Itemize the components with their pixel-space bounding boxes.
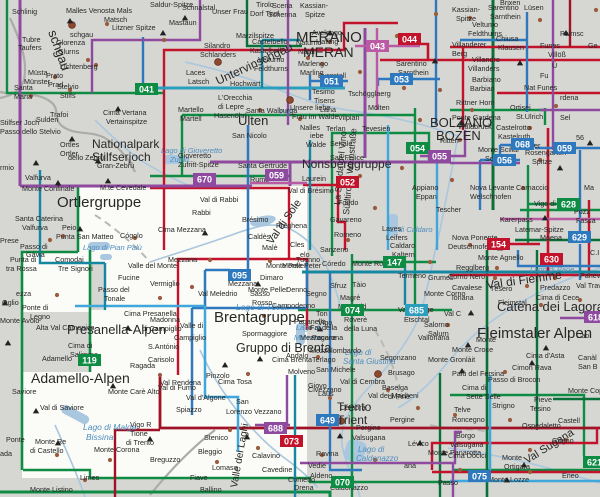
svg-text:Monte Peter: Monte Peter (282, 261, 322, 270)
svg-text:Denno: Denno (286, 285, 307, 294)
svg-text:Eneo: Eneo (562, 471, 579, 480)
svg-text:Villandro: Villandro (472, 55, 500, 64)
svg-text:Regglberg: Regglberg (456, 263, 489, 272)
svg-text:Ravina: Ravina (316, 449, 338, 458)
svg-text:Vigo R: Vigo R (130, 420, 151, 429)
svg-text:Lago di Pian Palù: Lago di Pian Palù (83, 243, 143, 252)
svg-text:Moena: Moena (540, 233, 562, 242)
svg-text:Drena: Drena (294, 483, 314, 492)
svg-text:Velturno: Velturno (258, 55, 284, 64)
svg-text:Monte Carè Alto: Monte Carè Alto (108, 387, 160, 396)
svg-text:154: 154 (491, 240, 506, 250)
svg-text:Saviore: Saviore (12, 387, 36, 396)
svg-text:Hafling: Hafling (316, 37, 338, 46)
svg-text:Palmsc: Palmsc (560, 29, 584, 38)
svg-text:Kassian-: Kassian- (300, 1, 329, 10)
svg-text:Vedie: Vedie (308, 461, 326, 470)
svg-text:Pieve: Pieve (534, 395, 552, 404)
svg-text:Stenico: Stenico (204, 433, 228, 442)
svg-text:Deutschnofen: Deutschnofen (448, 242, 492, 251)
svg-text:Ritten: Ritten (440, 136, 459, 145)
svg-text:Villöß: Villöß (548, 50, 566, 59)
svg-text:Carisolo: Carisolo (148, 355, 174, 364)
svg-text:Pagane: Pagane (312, 333, 337, 342)
svg-text:Ospedaletto: Ospedaletto (522, 421, 561, 430)
svg-text:Monte Croce: Monte Croce (452, 345, 493, 354)
svg-text:ada: ada (0, 449, 12, 458)
svg-text:Kastelbell: Kastelbell (250, 46, 282, 55)
svg-text:Paganella: Paganella (294, 317, 326, 326)
svg-text:Santa Gertrude: Santa Gertrude (238, 161, 287, 170)
svg-text:Ponte di: Ponte di (22, 303, 49, 312)
svg-text:Limes: Limes (80, 473, 100, 482)
svg-text:Lichtenberg: Lichtenberg (60, 62, 98, 71)
svg-text:Cima Tosa: Cima Tosa (218, 377, 252, 386)
svg-text:068: 068 (515, 140, 530, 150)
svg-text:Santa Caterina: Santa Caterina (15, 214, 63, 223)
svg-text:Schnalstal: Schnalstal (182, 3, 216, 12)
svg-text:Fassa: Fassa (576, 216, 596, 225)
svg-text:Predazzo: Predazzo (540, 283, 570, 292)
svg-text:649: 649 (320, 416, 335, 426)
svg-text:Comodai: Comodai (55, 255, 84, 264)
svg-text:Ballino: Ballino (200, 485, 222, 494)
svg-text:Gavareno: Gavareno (330, 215, 362, 224)
svg-text:Borgo: Borgo (456, 431, 475, 440)
svg-text:Marlengo: Marlengo (298, 59, 328, 68)
svg-text:Gioveretto: Gioveretto (178, 151, 211, 160)
svg-text:Tàio: Tàio (352, 280, 366, 289)
svg-text:Val C: Val C (444, 309, 461, 318)
svg-text:Campiglio: Campiglio (174, 333, 206, 342)
svg-text:Vilpian: Vilpian (338, 113, 359, 122)
svg-text:Appiano: Appiano (412, 183, 438, 192)
svg-text:Stilfser Joch: Stilfser Joch (0, 118, 39, 127)
svg-text:San Nicolo: San Nicolo (232, 131, 267, 140)
svg-text:059: 059 (557, 144, 572, 154)
svg-text:Lorenzo Vezzano: Lorenzo Vezzano (226, 407, 282, 416)
svg-text:Telve: Telve (454, 405, 471, 414)
svg-text:Canàl: Canàl (578, 353, 597, 362)
svg-text:Tesimo: Tesimo (312, 87, 335, 96)
svg-text:rmio: rmio (0, 163, 14, 172)
svg-text:Taufers: Taufers (18, 43, 42, 52)
svg-text:Tescher: Tescher (436, 205, 462, 214)
svg-text:Schlanders: Schlanders (200, 50, 236, 59)
svg-text:Scena: Scena (272, 1, 292, 10)
svg-text:Müsta: Müsta (28, 68, 48, 77)
svg-text:Cavalese: Cavalese (452, 283, 482, 292)
svg-text:054: 054 (410, 144, 425, 154)
svg-text:Salorno: Salorno (424, 320, 449, 329)
svg-text:Tonale: Tonale (104, 294, 125, 303)
svg-text:St.Ulrich: St.Ulrich (516, 112, 543, 121)
svg-text:Mölten: Mölten (368, 103, 390, 112)
svg-text:Oglio: Oglio (2, 298, 19, 307)
svg-text:075: 075 (472, 472, 487, 482)
svg-text:Tre Signori: Tre Signori (58, 264, 93, 273)
svg-text:Andalo: Andalo (286, 351, 308, 360)
svg-text:Monte Lozze: Monte Lozze (488, 475, 529, 484)
svg-text:Alta Val Camonica: Alta Val Camonica (36, 323, 95, 332)
svg-text:Madonna: Madonna (150, 315, 180, 324)
svg-text:Sarentino: Sarentino (396, 59, 427, 68)
svg-text:Caldaro: Caldaro (390, 241, 415, 250)
svg-text:Strigno: Strigno (492, 401, 515, 410)
svg-text:Lévico: Lévico (408, 439, 429, 448)
svg-text:Fleimstal: Fleimstal (498, 298, 527, 307)
svg-text:Welschnofen: Welschnofen (470, 192, 511, 201)
svg-text:Valfurva: Valfurva (25, 173, 51, 182)
svg-text:Rittner Horn: Rittner Horn (456, 98, 495, 107)
svg-text:Pergine: Pergine (356, 423, 381, 432)
svg-text:Brésimo: Brésimo (242, 215, 268, 224)
svg-text:M.te Cevedale: M.te Cevedale (100, 183, 146, 192)
svg-text:Ortigara: Ortigara (504, 462, 530, 471)
svg-text:628: 628 (561, 200, 576, 210)
svg-text:Carnaccio: Carnaccio (516, 183, 548, 192)
svg-text:di Castello: di Castello (30, 446, 64, 455)
svg-text:Cima di Cece: Cima di Cece (536, 293, 579, 302)
svg-text:Civezzano: Civezzano (308, 385, 342, 394)
svg-text:Mastaun: Mastaun (169, 18, 197, 27)
svg-text:Maria: Maria (14, 92, 32, 101)
svg-text:Tione: Tione (130, 429, 148, 438)
svg-text:Val Rendena: Val Rendena (160, 378, 201, 387)
svg-text:Waidbruck: Waidbruck (458, 122, 492, 131)
svg-text:Cima d'Asta: Cima d'Asta (526, 351, 565, 360)
svg-text:056: 056 (497, 156, 512, 166)
svg-text:Lago di Malga: Lago di Malga (83, 422, 137, 432)
svg-text:di Trento: di Trento (126, 438, 154, 447)
svg-text:Cavedine: Cavedine (262, 465, 292, 474)
svg-text:Ortisei: Ortisei (510, 103, 531, 112)
svg-text:Veltumo: Veltumo (472, 20, 498, 29)
svg-text:di Lepre: di Lepre (218, 102, 244, 111)
svg-text:Valle di: Valle di (180, 321, 203, 330)
svg-text:041: 041 (139, 85, 154, 95)
svg-text:621: 621 (587, 458, 600, 468)
svg-text:dello Zebrù: dello Zebrù (68, 153, 104, 162)
svg-text:Zufritt-Spitze: Zufritt-Spitze (178, 160, 219, 169)
svg-text:630: 630 (544, 255, 559, 265)
svg-text:Feldthurns: Feldthurns (254, 64, 288, 73)
svg-text:685: 685 (409, 306, 424, 316)
svg-text:Dimaro: Dimaro (260, 273, 283, 282)
svg-text:S.António: S.António (148, 342, 179, 351)
svg-text:Villanderer: Villanderer (452, 40, 487, 49)
svg-text:Stelvio: Stelvio (57, 82, 79, 91)
svg-text:Latsch: Latsch (188, 77, 209, 86)
svg-text:Sette Selle: Sette Selle (466, 392, 501, 401)
svg-text:San: San (236, 397, 249, 406)
svg-text:Spitze: Spitze (305, 10, 325, 19)
svg-text:Cles: Cles (290, 240, 305, 249)
svg-text:Santa: Santa (14, 83, 33, 92)
svg-text:Ü: Ü (552, 61, 557, 70)
svg-text:Passo del: Passo del (98, 285, 130, 294)
svg-text:Fiave: Fiave (190, 473, 208, 482)
svg-text:Ponte Gardena: Ponte Gardena (452, 113, 501, 122)
svg-text:Punta San Matteo: Punta San Matteo (56, 232, 114, 241)
svg-text:629: 629 (572, 233, 587, 243)
svg-text:074: 074 (345, 306, 360, 316)
svg-text:Tschögglaerg: Tschögglaerg (348, 89, 391, 98)
svg-text:Cima di: Cima di (462, 383, 487, 392)
svg-text:C.I: C.I (590, 248, 599, 257)
svg-text:Valsugana: Valsugana (352, 433, 385, 442)
svg-text:Barbian: Barbian (470, 84, 495, 93)
svg-text:San Michele: San Michele (316, 365, 356, 374)
svg-text:Frau im Walde: Frau im Walde (292, 112, 338, 121)
svg-text:Avelengo: Avelengo (312, 28, 342, 37)
svg-text:Mezzana: Mezzana (168, 255, 197, 264)
svg-text:Val Trave: Val Trave (576, 281, 600, 290)
svg-text:Sanzeno: Sanzeno (320, 245, 348, 254)
svg-text:Sasso: Sasso (250, 289, 270, 298)
svg-text:119: 119 (82, 356, 97, 366)
svg-text:L'Orecchia: L'Orecchia (218, 93, 252, 102)
svg-text:Lomaso: Lomaso (212, 463, 238, 472)
svg-text:Ma: Ma (584, 183, 594, 192)
svg-text:618: 618 (588, 313, 600, 323)
svg-text:Spiazzo: Spiazzo (176, 405, 202, 414)
svg-text:Stilfs: Stilfs (60, 91, 76, 100)
svg-text:Leifers: Leifers (386, 233, 408, 242)
svg-text:Glorenza: Glorenza (56, 38, 85, 47)
svg-text:Segno: Segno (306, 289, 327, 298)
svg-text:051: 051 (324, 77, 339, 87)
svg-text:Berg: Berg (452, 49, 467, 58)
svg-text:Laces: Laces (186, 68, 206, 77)
svg-text:Malles Venosta Mals: Malles Venosta Mals (66, 6, 132, 15)
svg-text:Caldès: Caldès (248, 232, 271, 241)
svg-text:Val di Rabbi: Val di Rabbi (200, 195, 239, 204)
svg-text:Corno Nero: Corno Nero (448, 272, 485, 281)
svg-text:Mezzolombardo: Mezzolombardo (310, 346, 361, 355)
svg-text:Cao: Cao (576, 331, 589, 340)
svg-text:Castelrotto: Castelrotto (496, 123, 531, 132)
svg-text:Monte: Monte (476, 335, 496, 344)
svg-text:Peio: Peio (62, 223, 76, 232)
svg-text:Martello: Martello (178, 105, 204, 114)
svg-text:Cima Mezzana: Cima Mezzana (158, 225, 206, 234)
svg-text:Schenna: Schenna (268, 10, 296, 19)
svg-text:Val dei Mocheni: Val dei Mocheni (368, 391, 419, 400)
svg-text:Litzner Spitze: Litzner Spitze (112, 23, 156, 32)
svg-text:schgau: schgau (70, 30, 93, 39)
svg-text:Nationalpark: Nationalpark (92, 137, 160, 151)
svg-text:Monte Copp: Monte Copp (568, 386, 600, 395)
svg-text:043: 043 (370, 42, 385, 52)
svg-text:Funes: Funes (540, 41, 560, 50)
svg-text:iebe: iebe (310, 131, 324, 140)
svg-text:Tésero: Tésero (490, 284, 512, 293)
svg-text:Spitze: Spitze (532, 157, 552, 166)
svg-text:Pergine: Pergine (390, 415, 415, 424)
svg-text:Martell: Martell (180, 114, 202, 123)
svg-text:Villanders: Villanders (468, 64, 500, 73)
svg-text:Bissina: Bissina (86, 432, 114, 442)
svg-text:Cimon Rava: Cimon Rava (512, 363, 552, 372)
svg-text:Cima di: Cima di (68, 341, 93, 350)
svg-text:Schlinig: Schlinig (12, 7, 37, 16)
svg-text:670: 670 (197, 175, 212, 185)
svg-text:Sel: Sel (560, 113, 571, 122)
svg-text:Monte Confinale: Monte Confinale (22, 184, 74, 193)
svg-text:Molveno: Molveno (288, 367, 315, 376)
svg-text:Silandro: Silandro (204, 41, 230, 50)
svg-text:Prese: Prese (0, 236, 19, 245)
svg-text:Fu: Fu (540, 71, 548, 80)
svg-text:Fondo: Fondo (338, 198, 358, 207)
svg-text:Adamello-Alpen: Adamello-Alpen (31, 370, 130, 386)
svg-text:Brusago: Brusago (388, 368, 415, 377)
svg-text:Ortles: Ortles (60, 140, 80, 149)
svg-text:Val di Saviore: Val di Saviore (40, 403, 84, 412)
svg-text:Castelbello: Castelbello (252, 37, 288, 46)
svg-text:Termeno: Termeno (398, 271, 426, 280)
svg-text:Monte Re: Monte Re (35, 437, 66, 446)
svg-text:Rosso: Rosso (252, 298, 272, 307)
svg-text:Grigno: Grigno (552, 436, 574, 445)
svg-text:Walde: Walde (306, 140, 326, 149)
svg-text:loriana: loriana (452, 293, 474, 302)
svg-text:073: 073 (284, 437, 299, 447)
svg-text:Kassian-: Kassian- (452, 5, 481, 14)
svg-text:Passo dello Stelvio: Passo dello Stelvio (0, 127, 61, 136)
svg-text:Palù del Fersina: Palù del Fersina (452, 369, 504, 378)
svg-text:Spormaggiore: Spormaggiore (242, 329, 287, 338)
svg-text:56: 56 (576, 133, 584, 142)
svg-text:Malè: Malè (262, 243, 278, 252)
svg-text:tra Rossa: tra Rossa (6, 264, 37, 273)
svg-text:Sulden: Sulden (36, 115, 58, 124)
svg-text:Adamello: Adamello (42, 354, 72, 363)
svg-text:Karerpass: Karerpass (500, 215, 533, 224)
svg-text:Segonzano: Segonzano (380, 353, 416, 362)
svg-text:095: 095 (232, 271, 247, 281)
svg-text:Barbiano: Barbiano (472, 75, 501, 84)
svg-text:Terlan: Terlan (326, 124, 346, 133)
svg-text:147: 147 (387, 258, 402, 268)
svg-text:Valloriana: Valloriana (418, 333, 449, 342)
svg-text:Tevesien: Tevesien (362, 124, 390, 133)
svg-text:Lago di: Lago di (358, 445, 384, 454)
svg-text:052: 052 (340, 178, 355, 188)
svg-text:Laves: Laves (382, 224, 402, 233)
svg-text:Ortlergruppe: Ortlergruppe (57, 194, 141, 211)
svg-text:Rabbi: Rabbi (192, 208, 211, 217)
svg-text:Lago di Pane: Lago di Pane (530, 265, 574, 274)
svg-text:Preghena: Preghena (276, 221, 307, 230)
svg-text:Grumes: Grumes (428, 273, 454, 282)
svg-text:Monte Avolo: Monte Avolo (0, 316, 39, 325)
svg-text:Unsere liebe: Unsere liebe (290, 103, 330, 112)
svg-text:Chiusa: Chiusa (496, 34, 518, 43)
svg-text:Roverè: Roverè (344, 315, 367, 324)
svg-text:Val Meledrio: Val Meledrio (198, 289, 237, 298)
svg-text:Senale: Senale (330, 139, 352, 148)
svg-text:059: 059 (269, 171, 284, 181)
svg-text:070: 070 (335, 478, 350, 488)
svg-text:Fucine: Fucine (118, 273, 140, 282)
svg-text:Ge: Ge (588, 41, 598, 50)
svg-text:Lüsen: Lüsen (524, 3, 544, 12)
svg-text:Hochwart: Hochwart (230, 79, 260, 88)
svg-text:Cima Vertana: Cima Vertana (103, 108, 147, 117)
svg-text:della Luna: della Luna (344, 324, 377, 333)
svg-text:Val di Brésimo: Val di Brésimo (288, 186, 334, 195)
svg-text:Magrè: Magrè (340, 293, 360, 302)
svg-text:Caldonazzo: Caldonazzo (356, 454, 399, 463)
svg-text:Glurns: Glurns (58, 47, 80, 56)
svg-text:Nat Funes: Nat Funes (524, 83, 558, 92)
svg-text:Passo: Passo (438, 478, 458, 487)
svg-text:Aldeno: Aldeno (310, 471, 332, 480)
svg-text:Valfurva: Valfurva (22, 223, 48, 232)
svg-text:rdena: rdena (560, 93, 578, 102)
svg-text:Cembra: Cembra (340, 403, 366, 412)
svg-text:Sfruz: Sfruz (330, 281, 347, 290)
svg-text:055: 055 (432, 152, 447, 162)
svg-text:Punta di: Punta di (10, 255, 37, 264)
svg-text:Laurein: Laurein (302, 174, 326, 183)
svg-text:Nova Levante: Nova Levante (470, 183, 514, 192)
svg-text:Calavino: Calavino (252, 451, 280, 460)
svg-text:Monte: Monte (502, 453, 522, 462)
svg-text:Eppan: Eppan (416, 192, 437, 201)
svg-text:Breguzzo: Breguzzo (150, 455, 180, 464)
svg-text:053: 053 (394, 75, 409, 85)
svg-text:ezza: ezza (16, 289, 31, 298)
svg-text:di Campiglio: di Campiglio (142, 324, 182, 333)
svg-text:Campodenno: Campodenno (272, 301, 315, 310)
svg-text:Natur: Natur (298, 47, 316, 56)
svg-text:Gran-Zebrù: Gran-Zebrù (97, 161, 134, 170)
svg-text:Paneve: Paneve (580, 271, 600, 280)
svg-text:Cógolo: Cógolo (120, 231, 143, 240)
svg-text:Ponte: Ponte (6, 435, 25, 444)
svg-text:Monte Agnello: Monte Agnello (478, 253, 524, 262)
svg-text:Sarentino: Sarentino (488, 3, 519, 12)
svg-text:Monte Panarotta: Monte Panarotta (428, 448, 481, 457)
svg-text:San B: San B (578, 362, 598, 371)
svg-text:Bleggio: Bleggio (198, 447, 222, 456)
svg-text:Val d'Algone: Val d'Algone (186, 393, 226, 402)
svg-text:Vermiglio: Vermiglio (150, 279, 180, 288)
svg-text:Unser Frau: Unser Frau (212, 7, 248, 16)
svg-text:044: 044 (402, 35, 417, 45)
svg-text:Klausen: Klausen (498, 43, 524, 52)
svg-text:Vertainspitze: Vertainspitze (106, 117, 147, 126)
svg-text:Castell: Castell (558, 416, 580, 425)
svg-text:Tesino: Tesino (530, 404, 551, 413)
svg-text:Romeno: Romeno (334, 230, 361, 239)
svg-text:Val di Cembra: Val di Cembra (340, 377, 385, 386)
svg-text:Monte Gronlàit: Monte Gronlàit (428, 355, 475, 364)
svg-text:ana: ana (404, 461, 416, 470)
svg-text:Hasenöhrl: Hasenöhrl (214, 111, 247, 120)
svg-text:Córedo: Córedo (322, 259, 346, 268)
svg-text:Roncegno: Roncegno (452, 415, 485, 424)
svg-text:Terlago: Terlago (312, 355, 336, 364)
svg-text:San Felice: San Felice (330, 153, 364, 162)
svg-text:Monte Listino: Monte Listino (30, 485, 73, 494)
svg-text:688: 688 (268, 424, 283, 434)
svg-text:Sarnthein: Sarnthein (490, 12, 521, 21)
